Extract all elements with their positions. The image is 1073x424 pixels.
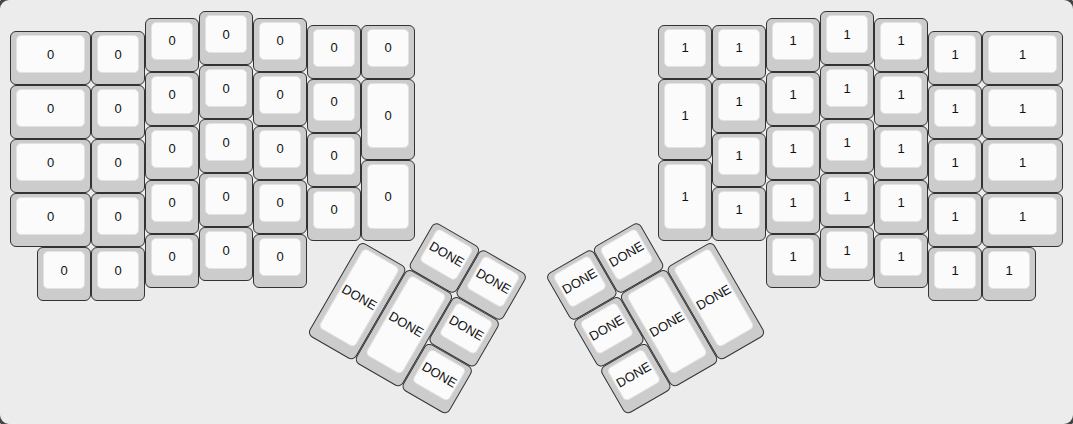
keycap-label: DONE bbox=[694, 282, 733, 312]
keycap-label: DONE bbox=[607, 239, 646, 269]
keycap-label: DONE bbox=[587, 313, 626, 343]
keycap-label: DONE bbox=[647, 309, 686, 339]
keyboard-canvas: 00000000000000000000000000000000DONEDONE… bbox=[0, 0, 1073, 424]
keycap-label: DONE bbox=[614, 360, 653, 390]
keycap-top-surface: DONE bbox=[552, 254, 607, 308]
keyboard: 00000000000000000000000000000000DONEDONE… bbox=[0, 0, 1073, 424]
keycap-label: DONE bbox=[560, 266, 599, 296]
keycap-top-surface: DONE bbox=[599, 227, 654, 281]
